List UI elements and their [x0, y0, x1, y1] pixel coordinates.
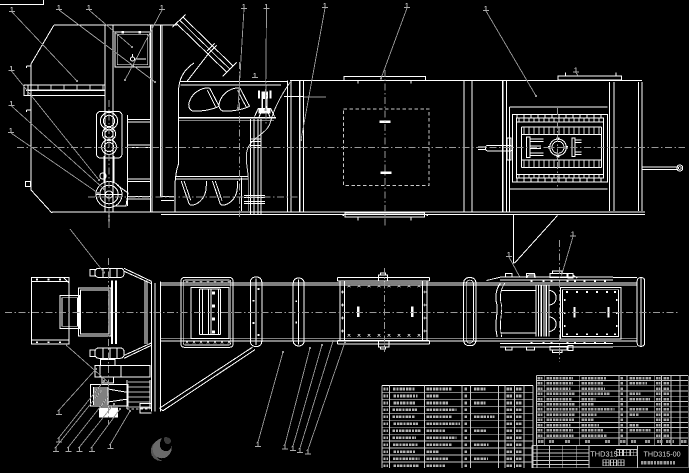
svg-text:THD315-00: THD315-00	[644, 449, 681, 458]
svg-text:THD315: THD315	[590, 449, 618, 458]
